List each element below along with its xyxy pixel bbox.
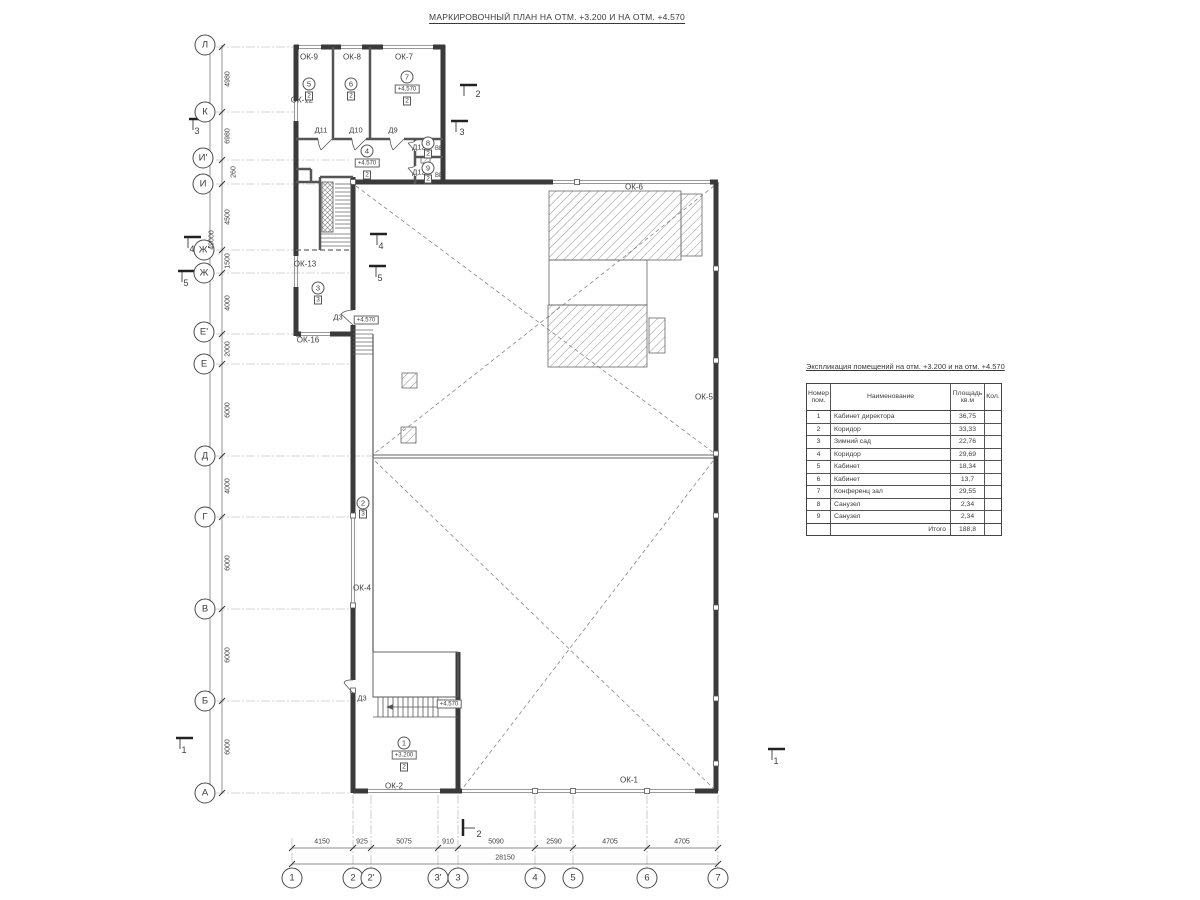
explication-row: 4Коридор29,69: [807, 449, 1001, 462]
explication-row: 2Коридор33,33: [807, 424, 1001, 437]
explication-cell: 8: [807, 499, 831, 511]
explication-cell: Конференц зал: [831, 486, 951, 498]
opening-diagonals: [356, 186, 714, 788]
explication-total-area: 188,8: [951, 524, 985, 536]
explication-row: 6Кабинет13,7: [807, 474, 1001, 487]
lower-stairs: [373, 697, 458, 717]
explication-cell: 1: [807, 411, 831, 423]
explication-cell: 29,69: [951, 449, 985, 461]
explication-body: 1Кабинет директора36,752Коридор33,333Зим…: [807, 411, 1001, 523]
explication-cell: 5: [807, 461, 831, 473]
exterior-walls: [294, 45, 718, 793]
explication-cell: [985, 524, 1001, 536]
explication-cell: [985, 499, 1001, 511]
explication-column-header: Номер пом.: [807, 384, 831, 410]
explication-cell: [985, 424, 1001, 436]
dimension-ticks: [207, 42, 721, 867]
explication-cell: 4: [807, 449, 831, 461]
explication-cell: 29,55: [951, 486, 985, 498]
winter-garden-steps: [353, 330, 373, 354]
explication-cell: Санузел: [831, 511, 951, 523]
explication: Экспликация помещений на отм. +3.200 и н…: [806, 362, 1002, 536]
explication-cell: Кабинет: [831, 461, 951, 473]
hatched-areas: [401, 157, 702, 443]
explication-cell: 36,75: [951, 411, 985, 423]
explication-table: Номер пом.НаименованиеПлощадь кв.мКол. 1…: [806, 383, 1002, 536]
explication-cell: 2: [807, 424, 831, 436]
explication-cell: Кабинет директора: [831, 411, 951, 423]
explication-cell: [985, 511, 1001, 523]
wall-pier-ticks: [351, 180, 719, 794]
explication-cell: Зимний сад: [831, 436, 951, 448]
explication-cell: 6: [807, 474, 831, 486]
explication-cell: 2,34: [951, 511, 985, 523]
explication-row: 7Конференц зал29,55: [807, 486, 1001, 499]
explication-cell: Кабинет: [831, 474, 951, 486]
explication-cell: [985, 474, 1001, 486]
explication-cell: 2,34: [951, 499, 985, 511]
explication-row: 5Кабинет18,34: [807, 461, 1001, 474]
explication-cell: 22,76: [951, 436, 985, 448]
explication-cell: 3: [807, 436, 831, 448]
dimension-lines: [210, 45, 718, 864]
explication-cell: Коридор: [831, 424, 951, 436]
explication-header-row: Номер пом.НаименованиеПлощадь кв.мКол.: [807, 384, 1001, 411]
explication-column-header: Наименование: [831, 384, 951, 410]
explication-cell: [985, 461, 1001, 473]
explication-total-label: Итого: [831, 524, 951, 536]
explication-row: 9Санузел2,34: [807, 511, 1001, 523]
explication-cell: [807, 524, 831, 536]
explication-cell: 7: [807, 486, 831, 498]
explication-cell: 18,34: [951, 461, 985, 473]
explication-row: 3Зимний сад22,76: [807, 436, 1001, 449]
drawing-sheet: МАРКИРОВОЧНЫЙ ПЛАН НА ОТМ. +3.200 И НА О…: [0, 0, 1200, 900]
explication-cell: [985, 436, 1001, 448]
gallery-edge-line: [373, 455, 716, 458]
explication-cell: Санузел: [831, 499, 951, 511]
light-partitions: [296, 250, 458, 697]
explication-cell: Коридор: [831, 449, 951, 461]
explication-row: 1Кабинет директора36,75: [807, 411, 1001, 424]
interior-walls: [296, 47, 443, 250]
explication-cell: 33,33: [951, 424, 985, 436]
explication-title: Экспликация помещений на отм. +3.200 и н…: [806, 362, 1002, 371]
explication-cell: 13,7: [951, 474, 985, 486]
explication-cell: [985, 486, 1001, 498]
explication-cell: 9: [807, 511, 831, 523]
explication-total-row: Итого 188,8: [807, 523, 1001, 536]
explication-cell: [985, 449, 1001, 461]
main-stairwell: [321, 182, 352, 246]
explication-row: 8Санузел2,34: [807, 499, 1001, 512]
windows: [295, 46, 711, 793]
explication-cell: [985, 411, 1001, 423]
floor-plan-linework: [0, 0, 1200, 900]
explication-column-header: Кол.: [985, 384, 1001, 410]
explication-column-header: Площадь кв.м: [951, 384, 985, 410]
grid-lines: [216, 47, 718, 868]
